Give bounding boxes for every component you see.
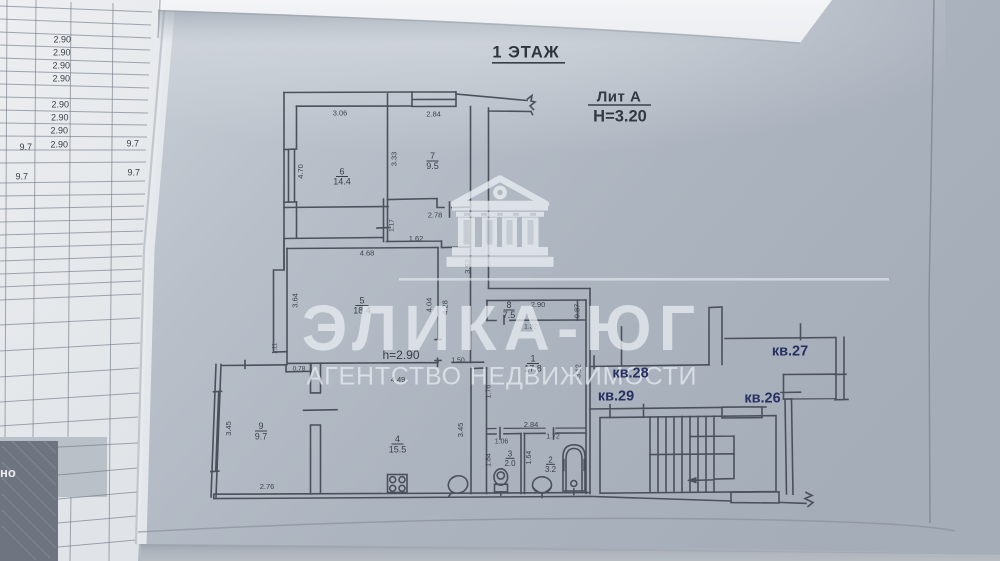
svg-text:1.84: 1.84 (486, 453, 493, 467)
svg-text:4: 4 (395, 434, 400, 444)
svg-text:ЭЛИКА-ЮГ: ЭЛИКА-ЮГ (302, 292, 702, 364)
svg-text:но: но (0, 465, 16, 480)
svg-text:Н=3.20: Н=3.20 (593, 108, 647, 126)
svg-text:9: 9 (258, 421, 263, 431)
svg-text:2.90: 2.90 (50, 140, 68, 150)
svg-text:2.90: 2.90 (52, 61, 70, 71)
svg-text:9.7: 9.7 (127, 168, 140, 178)
svg-text:2.0: 2.0 (504, 459, 516, 468)
svg-text:2.90: 2.90 (51, 100, 69, 110)
svg-text:3.45: 3.45 (456, 423, 465, 438)
svg-text:кв.29: кв.29 (598, 389, 634, 405)
svg-text:0.78: 0.78 (293, 366, 306, 373)
svg-text:6: 6 (339, 167, 344, 177)
svg-text:2.76: 2.76 (260, 482, 275, 491)
svg-text:2.90: 2.90 (53, 48, 71, 58)
svg-text:1.64: 1.64 (526, 451, 533, 465)
svg-text:4.68: 4.68 (360, 249, 375, 258)
svg-text:кв.28: кв.28 (612, 366, 648, 382)
svg-text:2.78: 2.78 (428, 211, 443, 220)
svg-text:3: 3 (508, 450, 513, 459)
svg-text:1.11: 1.11 (273, 342, 279, 354)
svg-text:1 ЭТАЖ: 1 ЭТАЖ (492, 44, 559, 62)
svg-text:2.90: 2.90 (52, 74, 70, 84)
svg-text:3.2: 3.2 (545, 465, 557, 474)
svg-text:9.5: 9.5 (426, 161, 439, 171)
svg-text:1.06: 1.06 (495, 439, 509, 446)
svg-text:кв.27: кв.27 (772, 344, 808, 360)
svg-text:3.33: 3.33 (390, 152, 399, 167)
svg-text:кв.26: кв.26 (744, 391, 780, 407)
svg-text:3.64: 3.64 (291, 293, 300, 308)
svg-text:1.17: 1.17 (389, 219, 396, 232)
svg-text:2.84: 2.84 (524, 420, 539, 429)
svg-text:3.45: 3.45 (224, 421, 233, 436)
svg-text:2.84: 2.84 (426, 110, 441, 119)
svg-text:Лит А: Лит А (597, 89, 642, 106)
svg-text:7: 7 (430, 151, 435, 161)
svg-text:2.90: 2.90 (53, 35, 71, 45)
svg-text:9.7: 9.7 (255, 432, 268, 442)
svg-text:9.7: 9.7 (19, 142, 32, 152)
svg-text:3.06: 3.06 (333, 109, 348, 118)
svg-text:2: 2 (548, 456, 553, 465)
svg-text:15.5: 15.5 (389, 445, 407, 455)
svg-text:2.90: 2.90 (51, 113, 69, 123)
svg-text:1.72: 1.72 (546, 434, 560, 441)
svg-text:2.90: 2.90 (50, 126, 68, 136)
svg-text:4.70: 4.70 (296, 164, 305, 179)
svg-text:9.7: 9.7 (126, 139, 139, 149)
svg-text:1.62: 1.62 (409, 234, 424, 243)
svg-text:14.4: 14.4 (333, 177, 351, 187)
svg-text:9.7: 9.7 (15, 172, 28, 182)
